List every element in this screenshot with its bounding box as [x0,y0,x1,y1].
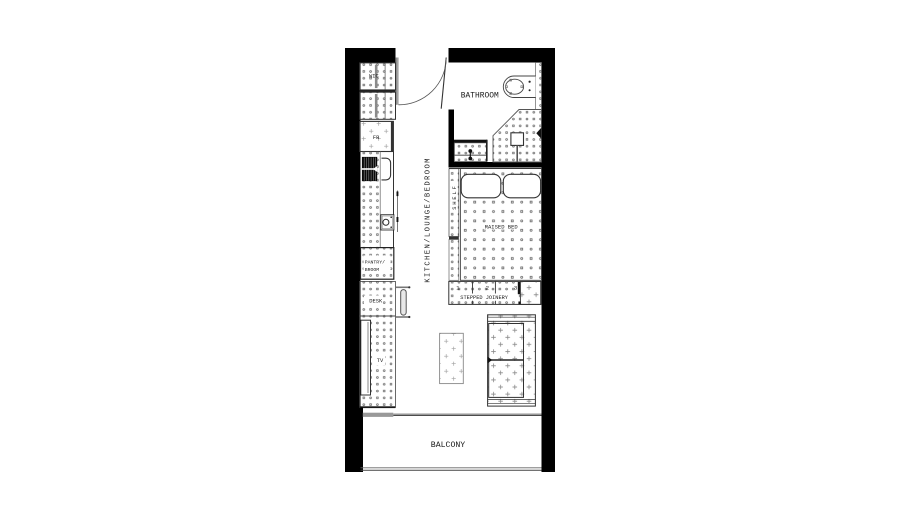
svg-text:BATHROOM: BATHROOM [461,91,499,100]
svg-text:2: 2 [486,284,489,291]
svg-text:BROOM: BROOM [365,267,380,273]
svg-text:WIC: WIC [369,74,379,80]
svg-text:TV: TV [377,358,384,364]
svg-text:SHELF: SHELF [452,184,458,210]
svg-text:BALCONY: BALCONY [431,441,465,450]
svg-text:PANTRY/: PANTRY/ [365,260,385,266]
svg-text:STEPPED JOINERY: STEPPED JOINERY [460,295,509,301]
svg-text:KITCHEN/LOUNGE/BEDROOM: KITCHEN/LOUNGE/BEDROOM [425,157,433,283]
svg-text:DESK: DESK [369,299,383,305]
svg-text:FR: FR [373,135,380,141]
svg-text:3: 3 [514,284,517,291]
svg-text:RAISED BED: RAISED BED [485,224,519,231]
